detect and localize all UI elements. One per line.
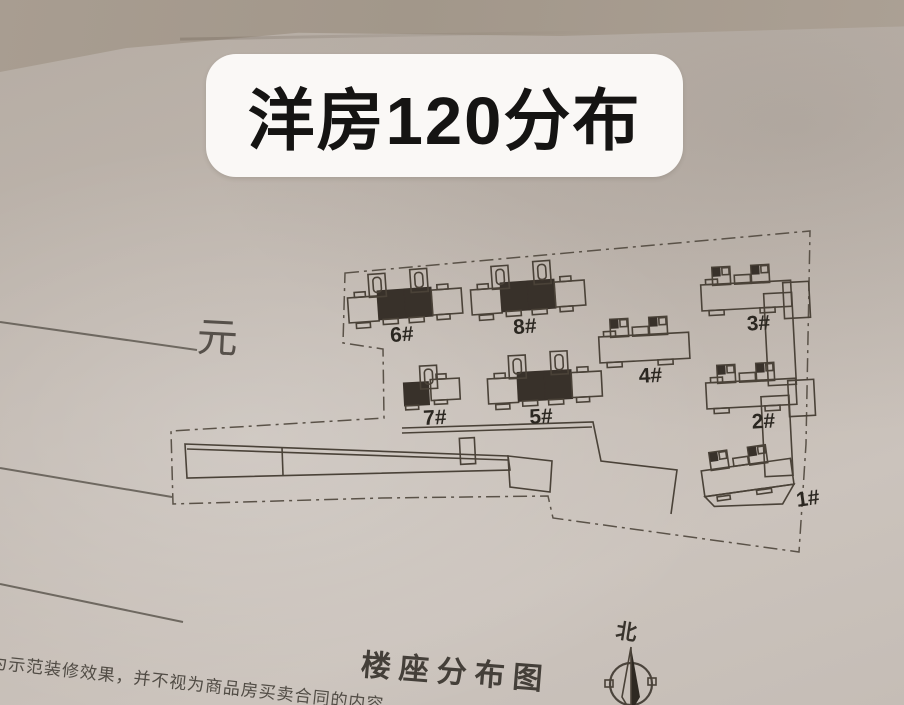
compass: [605, 647, 656, 705]
building-3: 3#: [700, 262, 812, 338]
disclaimer-text: 为示范装修效果，并不视为商品房买卖合同的内容: [0, 648, 386, 705]
title-pill: 洋房120分布: [206, 54, 683, 177]
building-label: 1#: [795, 486, 822, 512]
yuan-label: 元: [195, 303, 239, 365]
buildings-layer: 6#8#3#4#7#5#2#1#: [346, 258, 822, 524]
building-5: 5#: [486, 349, 604, 431]
building-label: 8#: [512, 314, 537, 339]
compass-needle-light-half: [622, 647, 631, 705]
photographed-paper: 洋房120分布 6#8#3#4#7#5#2#1#: [0, 0, 904, 705]
building-7: 7#: [403, 364, 462, 431]
building-label: 6#: [389, 322, 414, 347]
building-label: 2#: [751, 409, 776, 433]
building-label: 3#: [746, 311, 771, 335]
form-lines: [0, 322, 197, 622]
compass-needle-dark-half: [631, 647, 640, 705]
site-boundary-line: [171, 231, 810, 552]
building-label: 5#: [529, 405, 554, 429]
podium-strip: [185, 422, 677, 514]
building-4: 4#: [598, 315, 692, 390]
compass-tick-west: [605, 680, 613, 687]
building-label: 7#: [423, 406, 448, 430]
page-title: 洋房120分布: [248, 67, 642, 164]
compass-tick-east: [648, 678, 656, 685]
north-label: 北: [614, 615, 639, 648]
plan-caption: 楼座分布图: [360, 640, 553, 699]
building-6: 6#: [346, 266, 465, 350]
building-2: 2#: [705, 360, 817, 436]
building-label: 4#: [638, 364, 663, 388]
compass-ring: [610, 663, 652, 705]
side-connector: [761, 292, 796, 476]
building-1: 1#: [699, 438, 821, 524]
building-8: 8#: [469, 258, 588, 342]
